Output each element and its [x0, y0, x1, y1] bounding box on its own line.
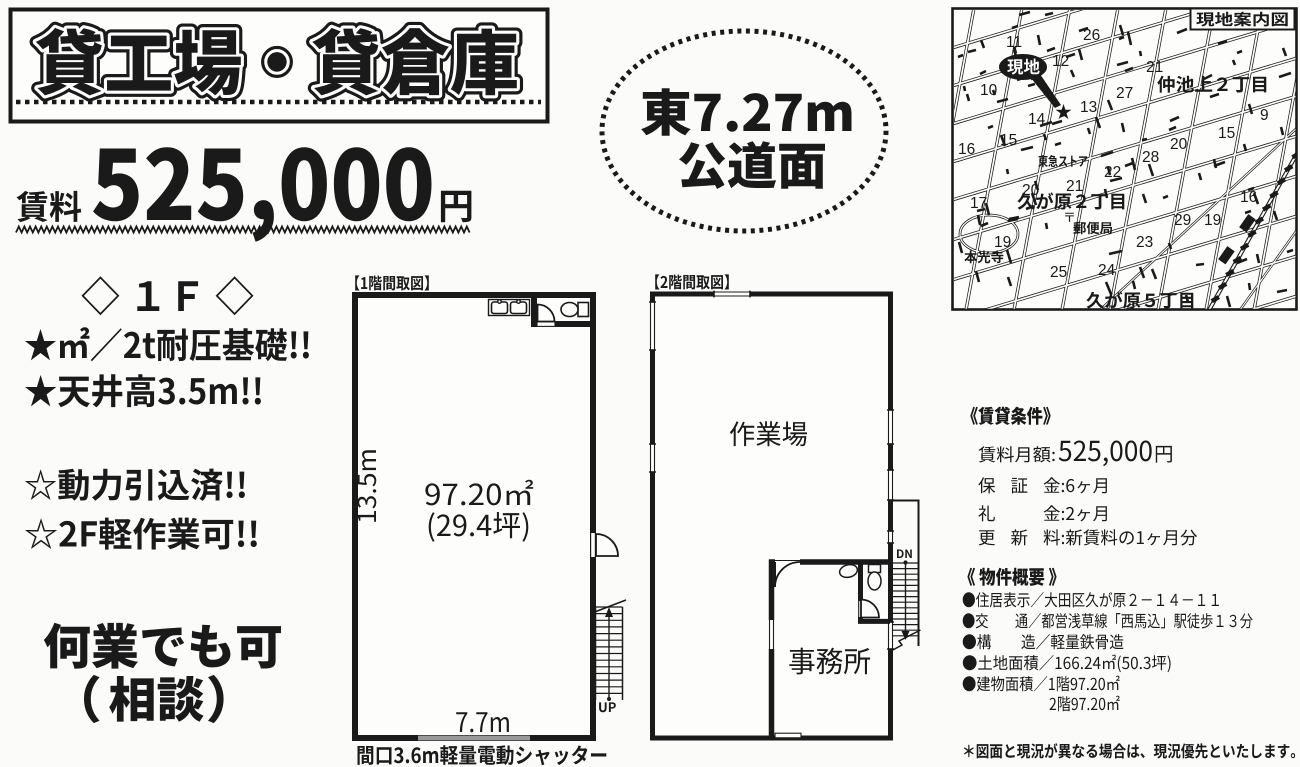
svg-text:21: 21 — [1146, 59, 1163, 76]
svg-text:13: 13 — [1080, 99, 1097, 116]
svg-text:20: 20 — [1170, 136, 1188, 153]
svg-text:23: 23 — [1136, 234, 1153, 251]
svg-text:11: 11 — [1006, 34, 1022, 51]
svg-text:19: 19 — [994, 234, 1011, 251]
svg-text:17: 17 — [970, 195, 987, 212]
svg-text:24: 24 — [1098, 262, 1116, 279]
svg-text:28: 28 — [1142, 149, 1159, 166]
svg-text:12: 12 — [1052, 53, 1069, 70]
svg-text:15: 15 — [1218, 125, 1235, 142]
svg-text:15: 15 — [1000, 132, 1017, 149]
svg-text:16: 16 — [1240, 189, 1257, 206]
svg-text:19: 19 — [1204, 212, 1221, 229]
svg-text:22: 22 — [1104, 164, 1121, 181]
svg-text:25: 25 — [1050, 264, 1067, 281]
svg-text:26: 26 — [1083, 27, 1100, 44]
svg-text:27: 27 — [1116, 85, 1133, 102]
svg-text:29: 29 — [1174, 212, 1191, 229]
svg-text:9: 9 — [1260, 107, 1269, 124]
svg-text:21: 21 — [1066, 178, 1083, 195]
svg-text:10: 10 — [980, 82, 998, 99]
svg-text:16: 16 — [958, 141, 975, 158]
svg-text:14: 14 — [1028, 111, 1046, 128]
